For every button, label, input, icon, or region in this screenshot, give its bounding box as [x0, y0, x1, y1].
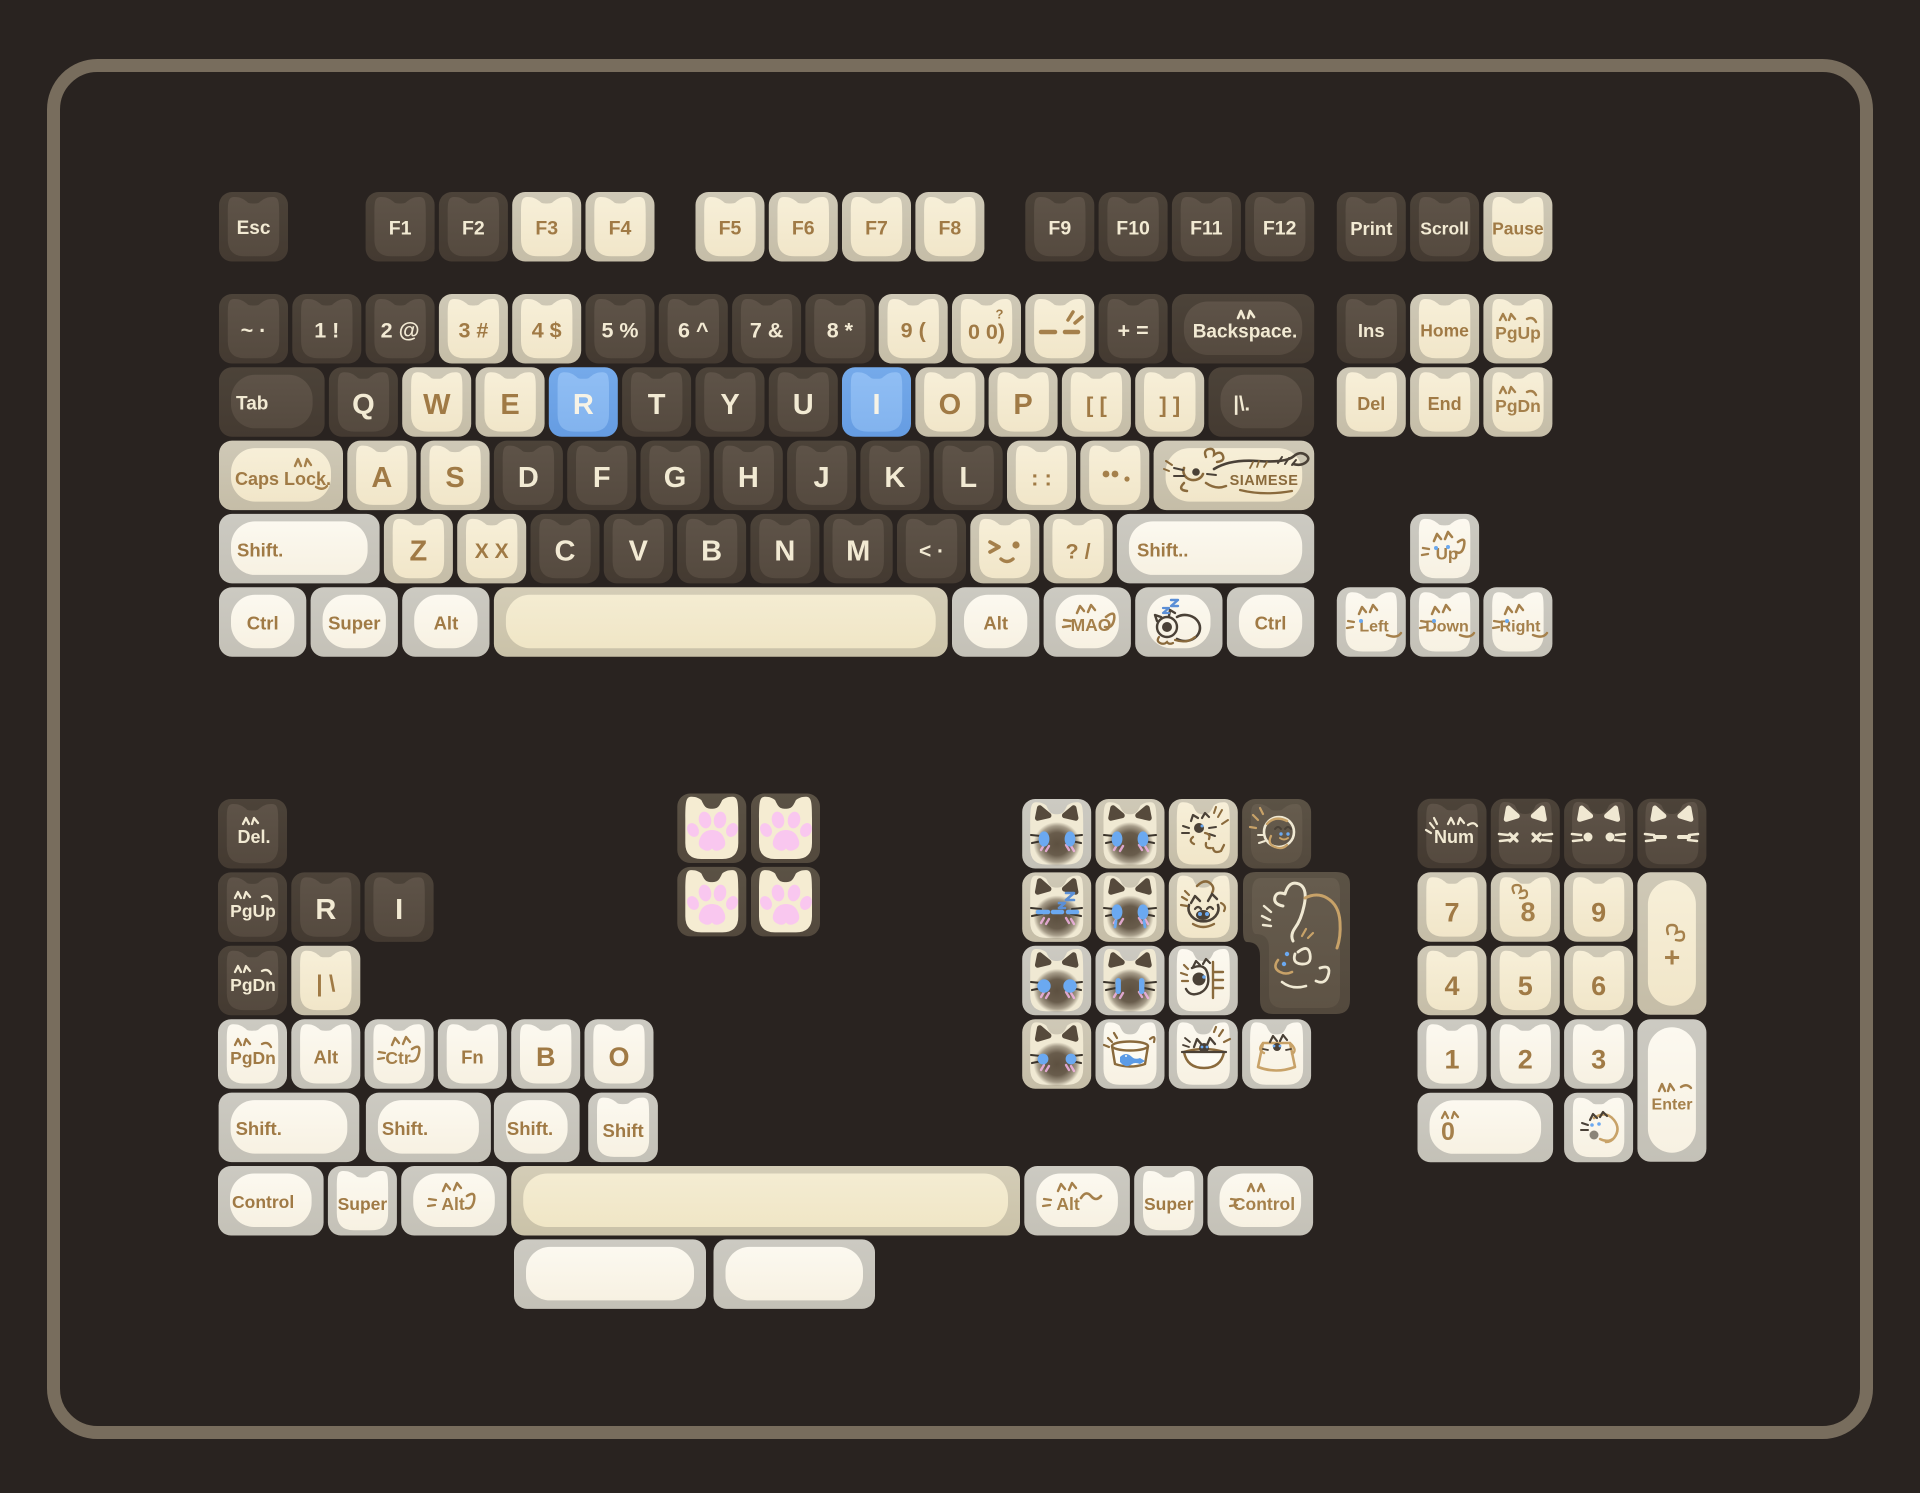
svg-text:Down: Down	[1425, 619, 1469, 636]
svg-text:|\.: |\.	[1233, 393, 1250, 415]
svg-text:Print: Print	[1350, 218, 1392, 239]
svg-text:I: I	[395, 894, 403, 926]
svg-text:: :: : :	[1031, 466, 1052, 491]
svg-text:Scroll: Scroll	[1420, 219, 1469, 239]
svg-text:Num: Num	[1434, 827, 1474, 847]
svg-text:F: F	[593, 462, 611, 494]
svg-text:F12: F12	[1263, 218, 1297, 240]
svg-text:0: 0	[1441, 1118, 1455, 1146]
svg-text:Alt: Alt	[441, 1194, 465, 1214]
svg-text:E: E	[500, 389, 519, 421]
svg-text:F8: F8	[939, 218, 962, 240]
svg-text:F7: F7	[865, 218, 888, 240]
svg-text:PgUp: PgUp	[230, 901, 276, 921]
svg-text:Shift.: Shift.	[382, 1118, 428, 1139]
svg-text:8 *: 8 *	[827, 319, 854, 343]
svg-text:I: I	[872, 389, 880, 421]
svg-text:Super: Super	[338, 1194, 388, 1214]
svg-text:P: P	[1013, 389, 1032, 421]
svg-text:B: B	[701, 535, 722, 567]
svg-text:B: B	[536, 1042, 556, 1072]
svg-text:F6: F6	[792, 218, 815, 240]
svg-text:R: R	[315, 894, 336, 926]
svg-text:PgDn: PgDn	[1495, 396, 1541, 416]
svg-text:4: 4	[1444, 971, 1459, 1001]
svg-text:+ =: + =	[1118, 319, 1149, 343]
svg-text:| \: | \	[316, 970, 336, 996]
svg-text:D: D	[518, 462, 539, 494]
svg-text:0 0): 0 0)	[968, 320, 1005, 344]
svg-text:Fn: Fn	[461, 1047, 484, 1068]
svg-text:F4: F4	[609, 218, 632, 240]
svg-text:K: K	[884, 462, 905, 494]
svg-text:Backspace.: Backspace.	[1193, 322, 1298, 343]
svg-text:? /: ? /	[1066, 539, 1091, 563]
svg-text:N: N	[774, 535, 795, 567]
svg-text:Enter: Enter	[1652, 1097, 1693, 1114]
svg-text:] ]: ] ]	[1159, 392, 1180, 417]
svg-text:1 !: 1 !	[314, 319, 339, 343]
svg-text:G: G	[664, 462, 687, 494]
svg-text:Esc: Esc	[237, 218, 271, 239]
svg-text:T: T	[648, 389, 666, 421]
svg-text:2 @: 2 @	[381, 319, 420, 343]
svg-text:Left: Left	[1359, 619, 1389, 636]
svg-text:7 &: 7 &	[750, 319, 783, 343]
svg-text:F1: F1	[389, 218, 412, 240]
svg-text:8: 8	[1520, 897, 1535, 927]
svg-text:Shift.: Shift.	[237, 539, 283, 560]
svg-text:W: W	[423, 389, 451, 421]
svg-text:5: 5	[1518, 971, 1533, 1001]
svg-text:?: ?	[996, 307, 1004, 322]
svg-text:Y: Y	[720, 389, 739, 421]
svg-text:Pause: Pause	[1492, 219, 1544, 239]
svg-text:PgDn: PgDn	[230, 1048, 276, 1068]
svg-text:4 $: 4 $	[532, 319, 562, 343]
svg-text:PgUp: PgUp	[1495, 323, 1541, 343]
svg-text:[ [: [ [	[1086, 392, 1107, 417]
svg-text:A: A	[371, 462, 392, 494]
svg-text:C: C	[555, 535, 576, 567]
svg-text:Shift.: Shift.	[507, 1118, 553, 1139]
svg-text:Ctr: Ctr	[385, 1048, 410, 1068]
svg-text:Ins: Ins	[1358, 320, 1385, 341]
svg-text:7: 7	[1444, 897, 1459, 927]
svg-text:3 #: 3 #	[458, 319, 488, 343]
svg-text:End: End	[1428, 394, 1462, 414]
svg-text:F9: F9	[1048, 218, 1071, 240]
svg-text:Shift: Shift	[603, 1120, 644, 1141]
svg-text:O: O	[939, 389, 962, 421]
svg-text:V: V	[629, 535, 649, 567]
svg-text:Shift..: Shift..	[1137, 539, 1188, 560]
svg-text:< ·: < ·	[919, 540, 944, 563]
svg-text:J: J	[814, 462, 830, 494]
svg-text:+: +	[1664, 942, 1680, 973]
svg-text:F11: F11	[1190, 218, 1223, 240]
svg-text:M: M	[846, 535, 870, 567]
svg-text:Super: Super	[1144, 1194, 1194, 1214]
svg-text:Ctrl: Ctrl	[247, 613, 279, 634]
svg-text:6: 6	[1591, 971, 1606, 1001]
svg-text:L: L	[959, 462, 977, 494]
svg-text:PgDn: PgDn	[230, 975, 276, 995]
svg-text:9: 9	[1591, 897, 1606, 927]
svg-text:O: O	[608, 1042, 629, 1072]
svg-text:~ ·: ~ ·	[241, 319, 267, 343]
svg-text:Alt: Alt	[1056, 1194, 1080, 1214]
svg-text:Q: Q	[352, 389, 375, 421]
svg-text:Z: Z	[410, 535, 428, 567]
svg-text:Del.: Del.	[237, 827, 270, 847]
svg-text:Del: Del	[1357, 394, 1385, 414]
svg-text:Alt: Alt	[983, 613, 1008, 634]
svg-text:Home: Home	[1420, 321, 1469, 341]
svg-text:SIAMESE: SIAMESE	[1230, 473, 1299, 489]
svg-text:X X: X X	[475, 540, 509, 563]
svg-text:5 %: 5 %	[601, 319, 638, 343]
svg-text:S: S	[445, 462, 464, 494]
svg-text:H: H	[738, 462, 759, 494]
svg-text:1: 1	[1444, 1044, 1459, 1074]
svg-text:2: 2	[1518, 1044, 1533, 1074]
svg-text:Ctrl: Ctrl	[1255, 613, 1287, 634]
svg-text:F2: F2	[462, 218, 485, 240]
svg-text:Tab: Tab	[236, 393, 268, 414]
svg-text:Control: Control	[1233, 1194, 1295, 1214]
svg-text:Super: Super	[328, 613, 380, 634]
svg-text:F3: F3	[535, 218, 558, 240]
svg-text:F10: F10	[1116, 218, 1150, 240]
svg-text:R: R	[573, 389, 594, 421]
svg-text:F5: F5	[719, 218, 742, 240]
svg-text:3: 3	[1591, 1044, 1606, 1074]
svg-text:Shift.: Shift.	[236, 1118, 282, 1139]
svg-text:6 ^: 6 ^	[678, 319, 709, 343]
svg-text:U: U	[793, 389, 814, 421]
svg-text:Alt: Alt	[313, 1047, 338, 1068]
svg-text:Control: Control	[232, 1192, 294, 1212]
svg-text:9 (: 9 (	[901, 319, 927, 343]
svg-text:Alt: Alt	[434, 613, 459, 634]
